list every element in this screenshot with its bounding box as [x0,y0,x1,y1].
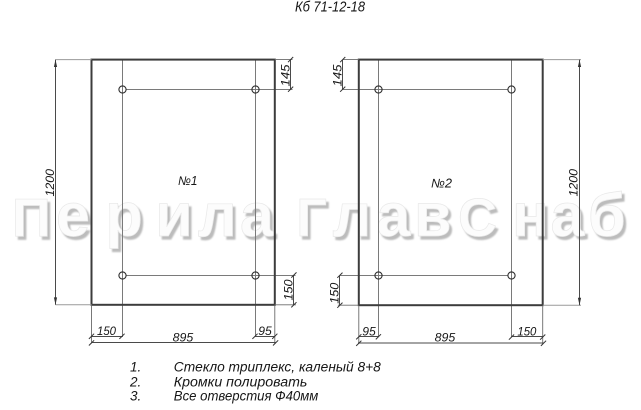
svg-text:895: 895 [435,331,456,345]
svg-text:л: л [333,181,372,249]
svg-text:е: е [56,181,90,249]
svg-text:Кб 71-12-18: Кб 71-12-18 [295,0,366,16]
svg-text:а: а [240,181,275,249]
svg-text:145: 145 [330,64,344,86]
svg-text:150: 150 [328,282,342,303]
svg-text:р: р [106,181,143,249]
svg-text:б: б [588,181,626,249]
svg-text:2.: 2. [129,375,141,390]
svg-text:Кромки полировать: Кромки полировать [174,375,308,390]
svg-text:1200: 1200 [567,169,581,197]
svg-text:Г: Г [296,188,327,248]
svg-text:а: а [377,181,412,249]
svg-text:95: 95 [258,324,272,338]
svg-text:3.: 3. [130,389,141,404]
svg-text:895: 895 [173,330,194,344]
svg-text:и: и [155,181,193,249]
svg-text:л: л [198,181,237,249]
svg-text:№1: №1 [178,174,198,188]
svg-text:в: в [414,181,452,249]
svg-text:150: 150 [97,324,116,338]
svg-text:145: 145 [278,64,292,86]
svg-text:150: 150 [282,279,296,300]
svg-text:150: 150 [517,325,536,339]
svg-text:1200: 1200 [43,169,57,197]
svg-text:№2: №2 [431,177,452,191]
svg-text:С: С [458,188,497,248]
svg-text:Стекло триплекс, каленый 8+8: Стекло триплекс, каленый 8+8 [174,360,381,375]
svg-text:1.: 1. [130,360,141,375]
svg-text:95: 95 [362,325,376,339]
svg-text:Все отверстия Ф40мм: Все отверстия Ф40мм [174,389,318,404]
